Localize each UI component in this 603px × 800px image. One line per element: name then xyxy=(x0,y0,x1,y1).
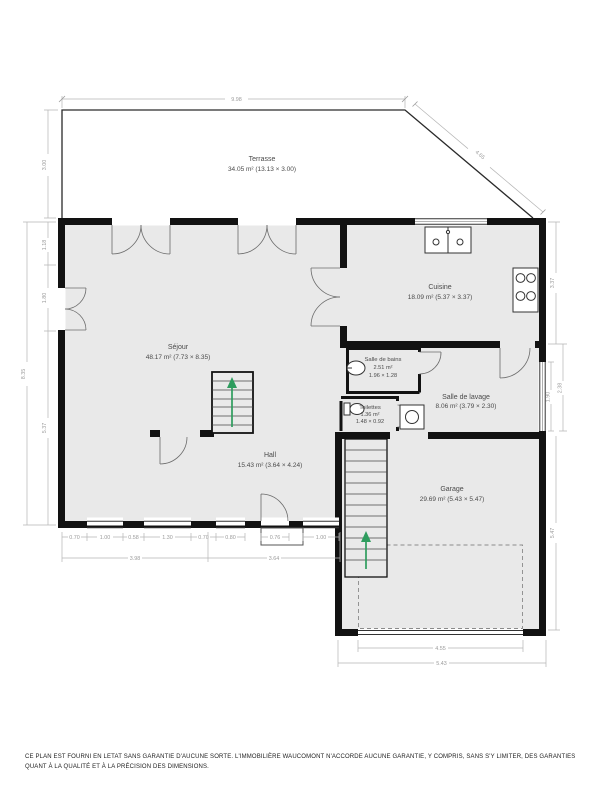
dim-label-bottom-sejour: 3.98 xyxy=(130,556,141,562)
washer-icon xyxy=(400,405,424,429)
dim-label-terrace-diagonal: 4.65 xyxy=(474,150,486,161)
dim-terrace-diagonal: 4.65 xyxy=(413,102,546,215)
dim-right-garage: 5.47 xyxy=(548,436,560,630)
kitchen-sink-icon xyxy=(425,227,471,253)
room-fills xyxy=(65,225,539,629)
dim-right-cuisine: 3.37 xyxy=(548,222,567,344)
room-dims-salle-de-bains: 1.96 × 1.28 xyxy=(369,373,397,379)
dim-label-garage-door: 4.55 xyxy=(435,646,446,652)
dim-left-upper: 1.18 xyxy=(42,222,56,265)
dim-garage-door: 4.55 xyxy=(358,640,523,652)
dim-label-terrace-left: 3.00 xyxy=(42,160,48,171)
room-label-cuisine: Cuisine xyxy=(428,284,451,291)
stove-icon xyxy=(513,268,538,312)
stairs-main xyxy=(212,372,253,433)
dim-left-lower: 5.37 xyxy=(42,331,56,525)
dim-label-b3: 1.30 xyxy=(162,535,173,541)
dim-right-lavage: 2.38 xyxy=(558,344,568,431)
dim-label-b7: 1.00 xyxy=(316,535,327,541)
room-area-toilettes: 1.36 m² xyxy=(361,412,380,418)
room-label-salle-de-bains: Salle de bains xyxy=(364,357,401,363)
room-label-salle-de-lavage: Salle de lavage xyxy=(442,394,490,401)
room-detail-hall: 15.43 m² (3.64 × 4.24) xyxy=(238,462,303,469)
dim-label-b5: 0.80 xyxy=(225,535,236,541)
stairs-garage xyxy=(345,439,387,577)
room-detail-sejour: 48.17 m² (7.73 × 8.35) xyxy=(146,354,211,361)
room-area-salle-de-bains: 2.51 m² xyxy=(374,365,393,371)
garage-door xyxy=(358,629,523,637)
room-detail-cuisine: 18.09 m² (5.37 × 3.37) xyxy=(408,294,473,301)
dim-left-outer: 8.35 xyxy=(21,222,44,525)
dim-label-b0: 0.70 xyxy=(69,535,80,541)
dim-label-b1: 1.00 xyxy=(100,535,111,541)
dim-label-right-garage: 5.47 xyxy=(550,528,556,539)
dim-terrace-left: 3.00 xyxy=(42,110,58,218)
room-label-sejour: Séjour xyxy=(168,344,189,351)
dim-label-right-window: 1.90 xyxy=(546,392,552,403)
dim-terrace-top: 9.98 xyxy=(59,96,408,108)
bathroom-sink-icon xyxy=(347,361,365,375)
room-detail-terrasse: 34.05 m² (13.13 × 3.00) xyxy=(228,166,296,173)
dim-label-left-upper: 1.18 xyxy=(42,240,48,251)
dim-label-b6: 0.76 xyxy=(270,535,281,541)
dim-label-right-lavage: 2.38 xyxy=(558,383,564,394)
dim-left-mid: 1.80 xyxy=(42,265,56,331)
dim-label-bottom-hall: 3.64 xyxy=(269,556,280,562)
floor-plan: 9.98 4.65 3.00 8.35 1.18 1.80 5.37 xyxy=(0,0,603,800)
dim-garage-width: 5.43 xyxy=(338,640,546,667)
dim-label-garage-width: 5.43 xyxy=(436,661,447,667)
terrace-outline xyxy=(62,110,533,218)
room-label-terrasse: Terrasse xyxy=(249,156,276,163)
dim-label-b2: 0.58 xyxy=(128,535,139,541)
dim-label-right-cuisine: 3.37 xyxy=(550,278,556,289)
room-label-hall: Hall xyxy=(264,452,277,459)
dim-label-left-outer: 8.35 xyxy=(21,369,27,380)
dim-label-left-lower: 5.37 xyxy=(42,423,48,434)
dim-right-window: 1.90 xyxy=(546,362,555,431)
room-label-toilettes: Toilettes xyxy=(359,405,381,411)
room-label-garage: Garage xyxy=(440,486,463,493)
dim-label-terrace-top: 9.98 xyxy=(231,97,242,103)
room-detail-salle-de-lavage: 8.06 m² (3.79 × 2.30) xyxy=(436,403,497,410)
room-dims-toilettes: 1.48 × 0.92 xyxy=(356,419,384,425)
dim-label-b4: 0.70 xyxy=(198,535,209,541)
room-detail-garage: 29.69 m² (5.43 × 5.47) xyxy=(420,496,485,503)
dim-label-left-mid: 1.80 xyxy=(42,293,48,304)
floor-plan-page: 9.98 4.65 3.00 8.35 1.18 1.80 5.37 xyxy=(0,0,603,800)
disclaimer-text: CE PLAN EST FOURNI EN LETAT SANS GARANTI… xyxy=(25,753,583,772)
entrance-step xyxy=(261,528,303,545)
